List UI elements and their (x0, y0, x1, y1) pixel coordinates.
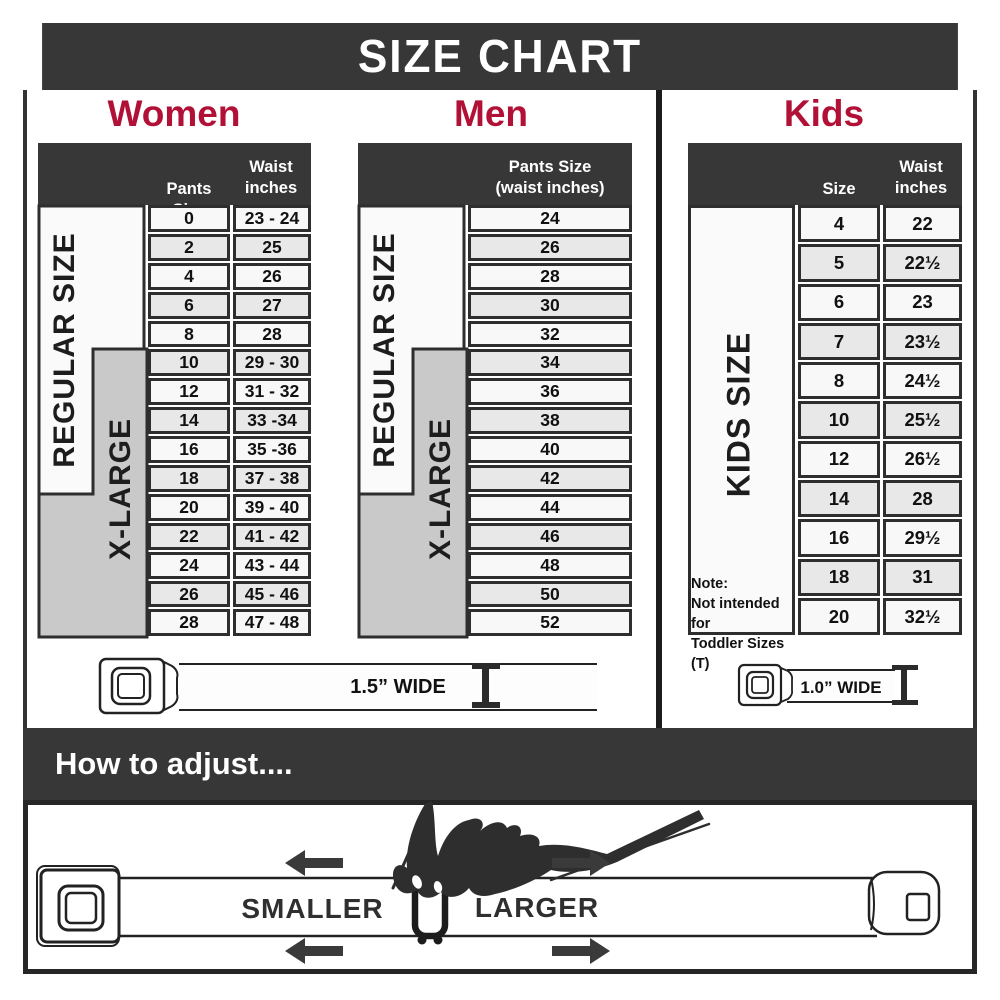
table-cell: 6 (148, 292, 230, 319)
women-col-waist: Waist inches (231, 157, 311, 199)
smaller-arrow-bottom-icon (285, 938, 343, 964)
section-divider (656, 90, 662, 728)
kids-belt-width-label: 1.0” WIDE (791, 678, 891, 698)
table-cell: 25 (233, 234, 311, 261)
kids-col-size: Size (798, 179, 880, 200)
women-heading: Women (64, 93, 284, 135)
table-cell: 18 (798, 559, 880, 596)
women-xlarge-label: X-LARGE (104, 339, 138, 639)
table-cell: 32 (468, 321, 632, 348)
table-cell: 8 (148, 321, 230, 348)
table-cell: 26 (468, 234, 632, 261)
table-cell: 26 (233, 263, 311, 290)
men-heading: Men (381, 93, 601, 135)
table-cell: 16 (798, 519, 880, 556)
table-cell: 5 (798, 244, 880, 281)
table-cell: 7 (798, 323, 880, 360)
table-cell: 8 (798, 362, 880, 399)
table-cell: 52 (468, 609, 632, 636)
kids-size-table: 422522½623723½824½1025½1226½14281629½183… (798, 205, 962, 635)
women-regular-label: REGULAR SIZE (48, 200, 82, 500)
table-cell: 22 (148, 523, 230, 550)
table-cell: 29 - 30 (233, 349, 311, 376)
table-cell: 28 (233, 321, 311, 348)
table-cell: 23 - 24 (233, 205, 311, 232)
table-cell: 12 (148, 378, 230, 405)
table-cell: 6 (798, 284, 880, 321)
men-size-table: 242628303234363840424446485052 (468, 205, 632, 636)
women-size-table: 023 - 242254266278281029 - 301231 - 3214… (148, 205, 311, 636)
table-cell: 34 (468, 349, 632, 376)
table-cell: 45 - 46 (233, 581, 311, 608)
table-cell: 4 (798, 205, 880, 242)
table-cell: 2 (148, 234, 230, 261)
table-cell: 33 -34 (233, 407, 311, 434)
table-cell: 24 (148, 552, 230, 579)
table-cell: 14 (798, 480, 880, 517)
men-col-pants: Pants Size (waist inches) (468, 157, 632, 199)
table-cell: 44 (468, 494, 632, 521)
table-cell: 26½ (883, 441, 962, 478)
size-chart-page: SIZE CHART Women Men Kids Pants Size Wai… (0, 0, 1000, 1000)
table-cell: 23½ (883, 323, 962, 360)
table-cell: 31 - 32 (233, 378, 311, 405)
table-cell: 31 (883, 559, 962, 596)
table-cell: 47 - 48 (233, 609, 311, 636)
kids-size-label: KIDS SIZE (721, 265, 758, 565)
men-xlarge-label: X-LARGE (424, 339, 458, 639)
table-cell: 25½ (883, 401, 962, 438)
table-cell: 20 (798, 598, 880, 635)
kids-note: Note: Not intended for Toddler Sizes (T) (691, 574, 801, 674)
table-cell: 37 - 38 (233, 465, 311, 492)
table-cell: 24 (468, 205, 632, 232)
table-cell: 16 (148, 436, 230, 463)
table-cell: 28 (883, 480, 962, 517)
smaller-label: SMALLER (240, 893, 385, 925)
table-cell: 0 (148, 205, 230, 232)
smaller-arrow-top-icon (285, 850, 343, 876)
table-cell: 28 (148, 609, 230, 636)
larger-arrow-top-icon (552, 850, 610, 876)
table-cell: 10 (798, 401, 880, 438)
table-cell: 32½ (883, 598, 962, 635)
table-cell: 39 - 40 (233, 494, 311, 521)
table-cell: 46 (468, 523, 632, 550)
men-regular-label: REGULAR SIZE (368, 200, 402, 500)
kids-heading: Kids (714, 93, 934, 135)
table-cell: 22½ (883, 244, 962, 281)
table-cell: 35 -36 (233, 436, 311, 463)
larger-label: LARGER (467, 892, 607, 924)
larger-arrow-bottom-icon (552, 938, 610, 964)
table-cell: 30 (468, 292, 632, 319)
table-cell: 28 (468, 263, 632, 290)
table-cell: 24½ (883, 362, 962, 399)
table-cell: 23 (883, 284, 962, 321)
table-cell: 43 - 44 (233, 552, 311, 579)
table-cell: 50 (468, 581, 632, 608)
table-cell: 20 (148, 494, 230, 521)
table-cell: 29½ (883, 519, 962, 556)
table-cell: 4 (148, 263, 230, 290)
table-cell: 10 (148, 349, 230, 376)
table-cell: 14 (148, 407, 230, 434)
adult-belt-width-label: 1.5” WIDE (338, 676, 458, 699)
adjust-belt-illustration (35, 790, 955, 975)
table-cell: 26 (148, 581, 230, 608)
table-cell: 42 (468, 465, 632, 492)
table-cell: 18 (148, 465, 230, 492)
page-title: SIZE CHART (42, 23, 958, 90)
kids-col-waist: Waist inches (880, 157, 962, 199)
table-cell: 41 - 42 (233, 523, 311, 550)
table-cell: 22 (883, 205, 962, 242)
table-cell: 48 (468, 552, 632, 579)
table-cell: 38 (468, 407, 632, 434)
table-cell: 40 (468, 436, 632, 463)
table-cell: 12 (798, 441, 880, 478)
table-cell: 27 (233, 292, 311, 319)
table-cell: 36 (468, 378, 632, 405)
